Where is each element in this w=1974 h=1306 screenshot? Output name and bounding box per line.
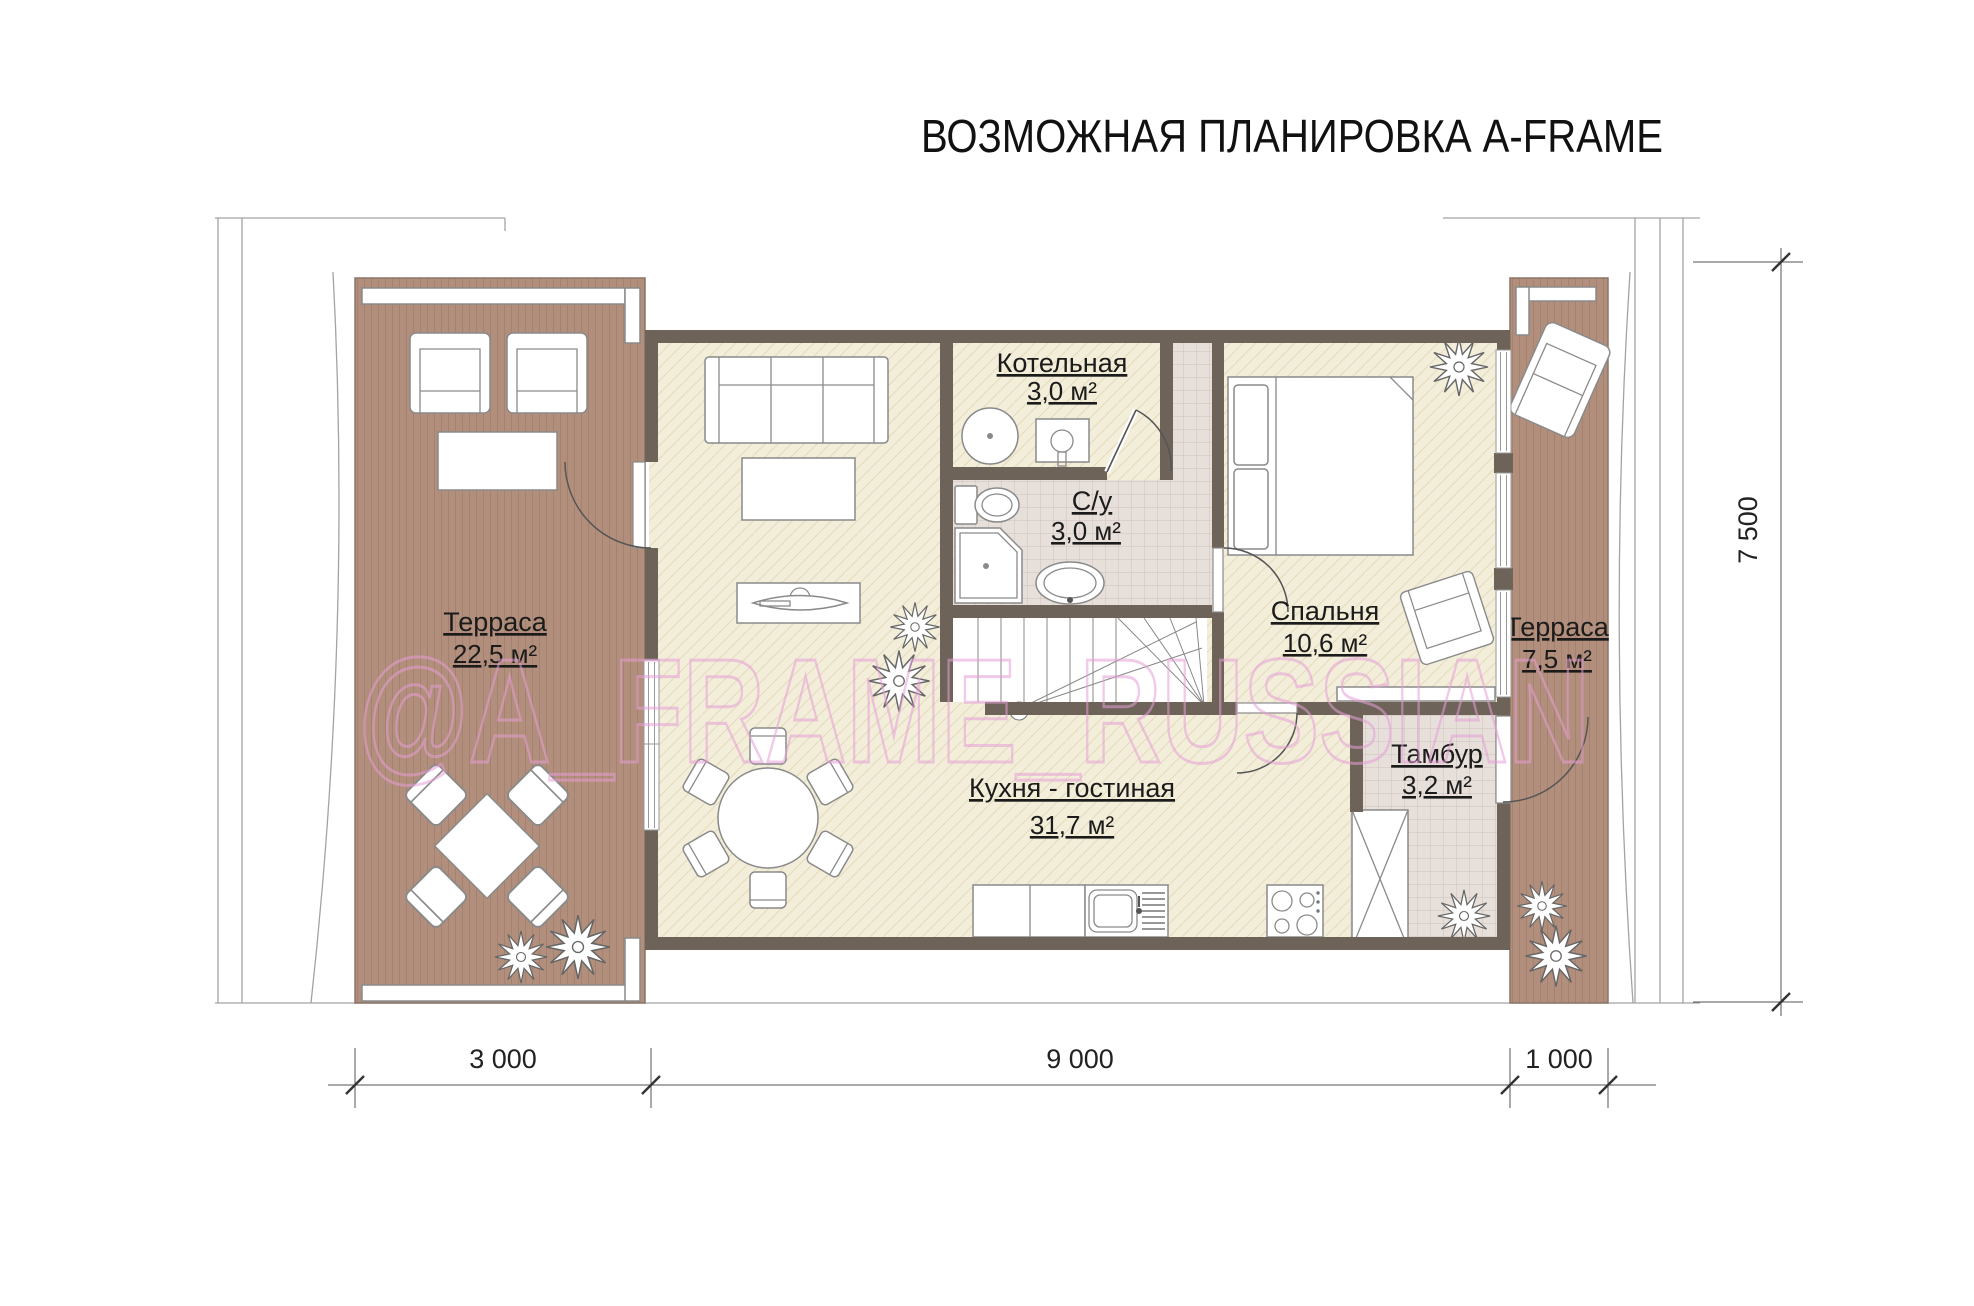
- terrace-left-bottom-rail-end: [625, 938, 640, 1001]
- terrace-left-top-rail-end: [625, 288, 640, 343]
- terrace-armchair: [410, 333, 490, 413]
- stove: [1267, 885, 1323, 937]
- wardrobe: [1352, 810, 1408, 948]
- floor-plan-drawing: ВОЗМОЖНАЯ ПЛАНИРОВКА A-FRAME: [0, 0, 1974, 1306]
- water-heater-unit: [1036, 419, 1089, 462]
- watermark-text: @A_FRAME_RUSSIAN: [358, 629, 1590, 794]
- kitchen-counter: [973, 885, 1168, 937]
- bedroom-window: [1496, 473, 1511, 568]
- room-label-boiler: Котельная: [997, 348, 1128, 378]
- page-title: ВОЗМОЖНАЯ ПЛАНИРОВКА A-FRAME: [921, 110, 1663, 162]
- room-area-boiler: 3,0 м²: [1027, 376, 1097, 406]
- coffee-table: [742, 458, 855, 520]
- floor-plan-page: ВОЗМОЖНАЯ ПЛАНИРОВКА A-FRAME: [0, 0, 1974, 1306]
- room-area-kitchen-living: 31,7 м²: [1030, 810, 1115, 840]
- room-label-bedroom: Спальня: [1271, 596, 1380, 626]
- dimension-right: 7 500: [1693, 248, 1803, 1016]
- terrace-coffee-table: [438, 432, 557, 490]
- bedroom-window: [1496, 350, 1511, 453]
- terrace-left-top-rail: [362, 288, 625, 304]
- terrace-right-top-rail-end: [1516, 287, 1529, 335]
- tv-stand: [737, 583, 860, 623]
- double-bed: [1228, 377, 1413, 555]
- shower: [955, 528, 1022, 603]
- dim-terrace-right-width: 1 000: [1525, 1044, 1593, 1074]
- dim-house-width: 9 000: [1046, 1044, 1114, 1074]
- bathroom-sink: [1036, 562, 1104, 604]
- dim-terrace-left-width: 3 000: [469, 1044, 537, 1074]
- dim-total-height: 7 500: [1733, 496, 1763, 564]
- sofa: [705, 357, 888, 443]
- toilet: [955, 486, 1019, 524]
- room-area-bathroom: 3,0 м²: [1051, 516, 1121, 546]
- terrace-left-bottom-rail: [362, 985, 626, 1001]
- room-label-bathroom: С/у: [1072, 486, 1113, 516]
- dimension-bottom: 3 000 9 000 1 000: [328, 1044, 1656, 1108]
- terrace-armchair: [507, 333, 587, 413]
